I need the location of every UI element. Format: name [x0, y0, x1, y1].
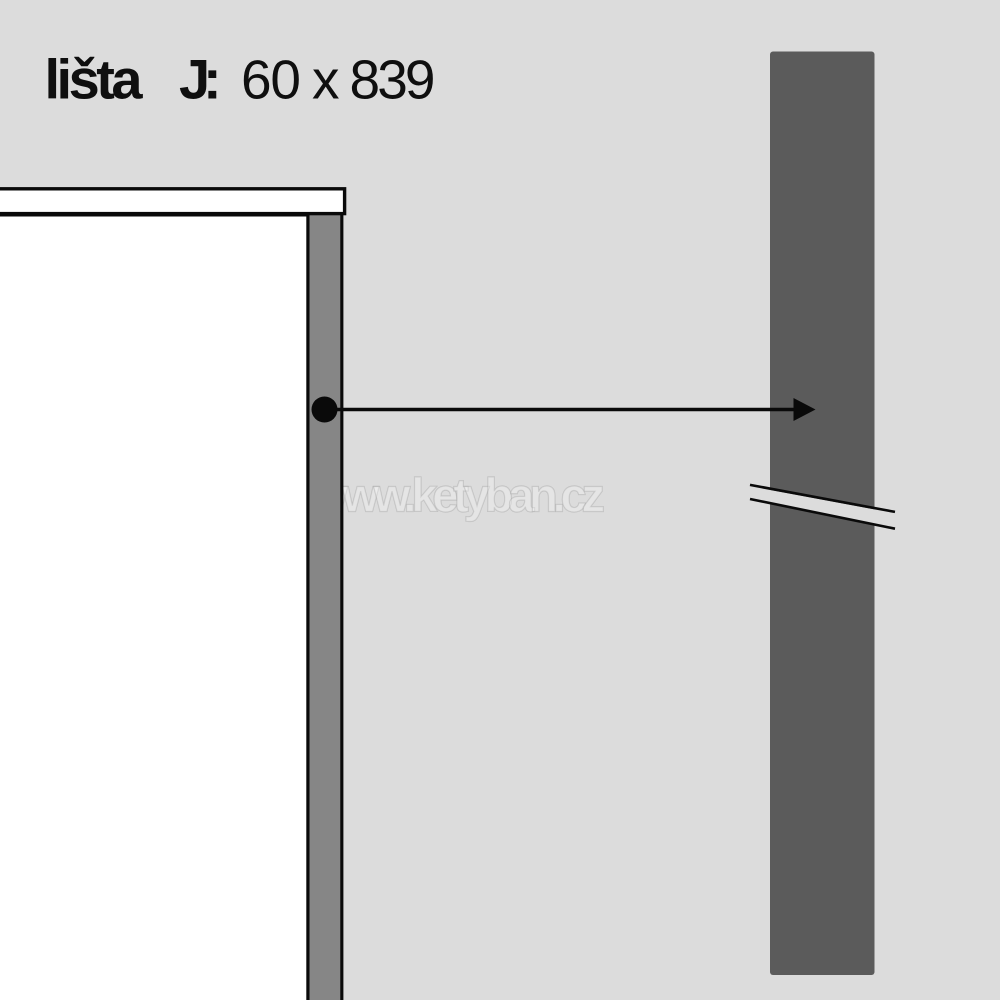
svg-text:839: 839: [350, 49, 436, 111]
svg-text:www.ketyban.cz: www.ketyban.cz: [310, 469, 605, 522]
svg-text:60: 60: [241, 49, 301, 111]
svg-text:x: x: [312, 49, 340, 111]
svg-text:lišta: lišta: [45, 47, 144, 110]
svg-text::: :: [203, 47, 222, 110]
